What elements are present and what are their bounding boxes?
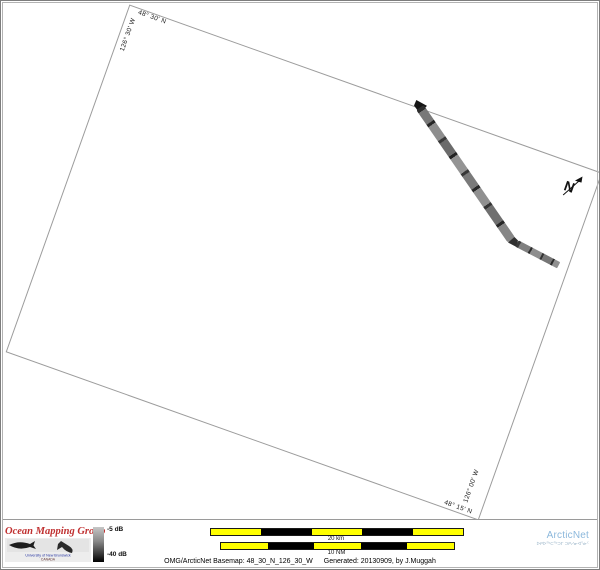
arcticnet-syllabics: ᐅᑭᐅᖅᑕᖅᑐᒥ ᑐᑭᓯᓂᐊᕐᓃᑦ xyxy=(536,541,589,548)
label-latitude-top: 48° 30' N xyxy=(137,9,167,26)
scalebar-nm-label: 10 NM xyxy=(220,550,453,557)
colorbar-label-top: -5 dB xyxy=(107,526,123,533)
scalebar-segment xyxy=(413,529,463,535)
scalebar-segment xyxy=(407,543,454,549)
scalebar-segment xyxy=(362,529,412,535)
caption-basemap: OMG/ArcticNet Basemap: 48_30_N_126_30_W xyxy=(164,558,313,565)
scalebar-segment xyxy=(312,529,362,535)
scalebar-segment xyxy=(268,543,315,549)
map-canvas: 48° 30' N 126° 30' W 48° 15' N 126° 00' … xyxy=(0,0,600,520)
label-longitude-left: 126° 30' W xyxy=(119,17,138,52)
backscatter-colorbar xyxy=(93,527,104,562)
north-arrow-icon: N xyxy=(559,168,586,202)
arcticnet-logo: ArcticNet ᐅᑭᐅᖅᑕᖅᑐᒥ ᑐᑭᓯᓂᐊᕐᓃᑦ xyxy=(536,531,589,548)
scalebar-segment xyxy=(361,543,408,549)
scalebar-nm xyxy=(220,542,455,550)
scalebar-km xyxy=(210,528,464,536)
north-letter: N xyxy=(562,177,577,195)
omg-logo: Ocean Mapping Group University of New Br… xyxy=(5,526,95,562)
scalebar-segment xyxy=(221,543,268,549)
scalebar-segment xyxy=(261,529,311,535)
scalebar-segment xyxy=(211,529,261,535)
colorbar-label-bottom: -40 dB xyxy=(107,551,127,558)
caption: OMG/ArcticNet Basemap: 48_30_N_126_30_W … xyxy=(3,558,597,565)
caption-generated: Generated: 20130909, by J.Muggah xyxy=(324,558,436,565)
scalebar-segment xyxy=(314,543,361,549)
label-longitude-right: 126° 00' W xyxy=(462,469,481,504)
map-boundary: 48° 30' N 126° 30' W 48° 15' N 126° 00' … xyxy=(6,4,600,520)
arcticnet-name: ArcticNet xyxy=(536,531,589,541)
legend-panel: Ocean Mapping Group University of New Br… xyxy=(3,523,597,567)
omg-title: Ocean Mapping Group xyxy=(5,526,95,537)
